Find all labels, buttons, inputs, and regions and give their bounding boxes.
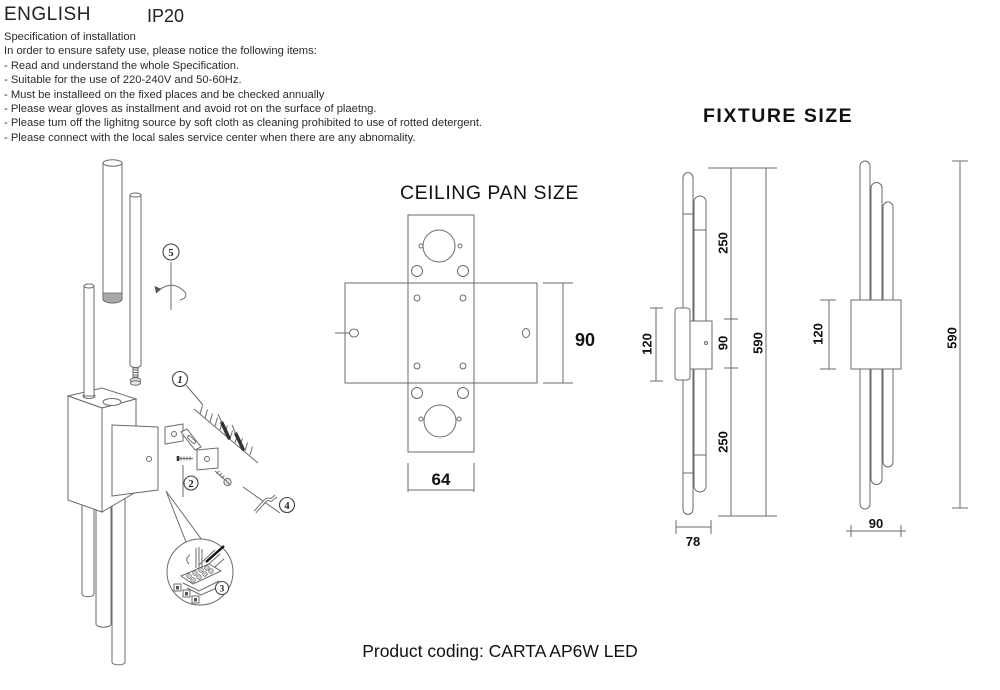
- arrow-head: [155, 286, 162, 293]
- dim-250-upper-label: 250: [716, 232, 731, 254]
- dim-90-label: 90: [575, 330, 595, 350]
- mounting-bracket: [165, 424, 218, 470]
- product-coding: Product coding: CARTA AP6W LED: [0, 641, 1000, 662]
- dim-64-label: 64: [432, 470, 451, 489]
- specification-text: Specification of installation In order t…: [4, 30, 482, 145]
- dim-120-front: 120: [811, 300, 837, 369]
- tube-end-cap: [103, 293, 122, 303]
- dim-78-label: 78: [686, 534, 700, 549]
- slot-right: [523, 329, 530, 338]
- step-3-number: 3: [220, 584, 225, 594]
- dim-120-front-label: 120: [811, 323, 826, 345]
- threaded-stud: [131, 368, 141, 385]
- dim-120-side: 120: [640, 308, 664, 381]
- dim-lines-right: 250 90 250 590: [708, 168, 777, 516]
- ceiling-pan-title: CEILING PAN SIZE: [400, 182, 579, 205]
- step-4-number: 4: [284, 501, 290, 512]
- step-1-marker: 1: [173, 372, 204, 406]
- screw-diagonal: [215, 471, 231, 486]
- dim-78: 78: [676, 520, 711, 549]
- slot-left: [350, 329, 359, 337]
- ceiling-pan-diagram: 90 64: [330, 205, 610, 505]
- lower-tubes: [82, 496, 125, 665]
- plate-hole: [147, 457, 152, 462]
- screw-horizontal: [178, 456, 193, 461]
- spec-item: - Please connect with the local sales se…: [4, 131, 482, 145]
- wall-box: [68, 388, 158, 512]
- dim-90: 90: [543, 283, 595, 383]
- thin-tube: [130, 195, 141, 368]
- large-tube: [103, 163, 122, 303]
- fixture-side-view-diagram: 120 250 90 250 590 78: [640, 155, 780, 555]
- fixture-front-view-diagram: 120 590 90: [810, 150, 980, 550]
- ip-rating-label: IP20: [147, 6, 184, 27]
- dim-90-front-label: 90: [869, 516, 883, 531]
- bracket-box-front: [851, 300, 901, 369]
- language-label: ENGLISH: [4, 4, 91, 26]
- pan-vertical-plate: [408, 215, 474, 452]
- spec-sheet-page: ENGLISH IP20 Specification of installati…: [0, 0, 1000, 690]
- dim-590-front-label: 590: [945, 327, 960, 349]
- spec-item: - Must be installeed on the fixed places…: [4, 88, 482, 102]
- step-4-marker: 4: [243, 487, 295, 513]
- leader-line: [186, 385, 203, 405]
- step-5-number: 5: [168, 248, 173, 259]
- spec-item: - Please tum off the lighitng source by …: [4, 116, 482, 130]
- dim-64: 64: [408, 463, 474, 492]
- spec-intro: In order to ensure safety use, please no…: [4, 44, 482, 58]
- upper-tubes: [84, 160, 141, 396]
- step-2-number: 2: [188, 479, 193, 490]
- wiring-detail-callout: 3: [166, 491, 233, 605]
- bracket-box: [690, 321, 712, 369]
- spec-item: - Suitable for the use of 220-240V and 5…: [4, 73, 482, 87]
- wall-plate: [675, 308, 690, 380]
- tube-hole-large: [103, 399, 121, 406]
- dim-250-lower-label: 250: [716, 431, 731, 453]
- dim-90-center-label: 90: [716, 336, 731, 350]
- fixture-size-title: FIXTURE SIZE: [703, 105, 853, 128]
- step-5-marker: 5: [155, 244, 186, 310]
- spec-title: Specification of installation: [4, 30, 482, 44]
- installation-diagram: 5 1: [50, 150, 320, 670]
- dim-590-label: 590: [751, 332, 766, 354]
- dim-90-front: 90: [846, 516, 906, 537]
- dim-120-label: 120: [640, 333, 655, 355]
- spec-item: - Please wear gloves as installment and …: [4, 102, 482, 116]
- spec-item: - Read and understand the whole Specific…: [4, 59, 482, 73]
- step-2-marker: 2: [183, 465, 198, 497]
- dim-590-front: 590: [945, 161, 969, 508]
- step-1-number: 1: [177, 375, 182, 386]
